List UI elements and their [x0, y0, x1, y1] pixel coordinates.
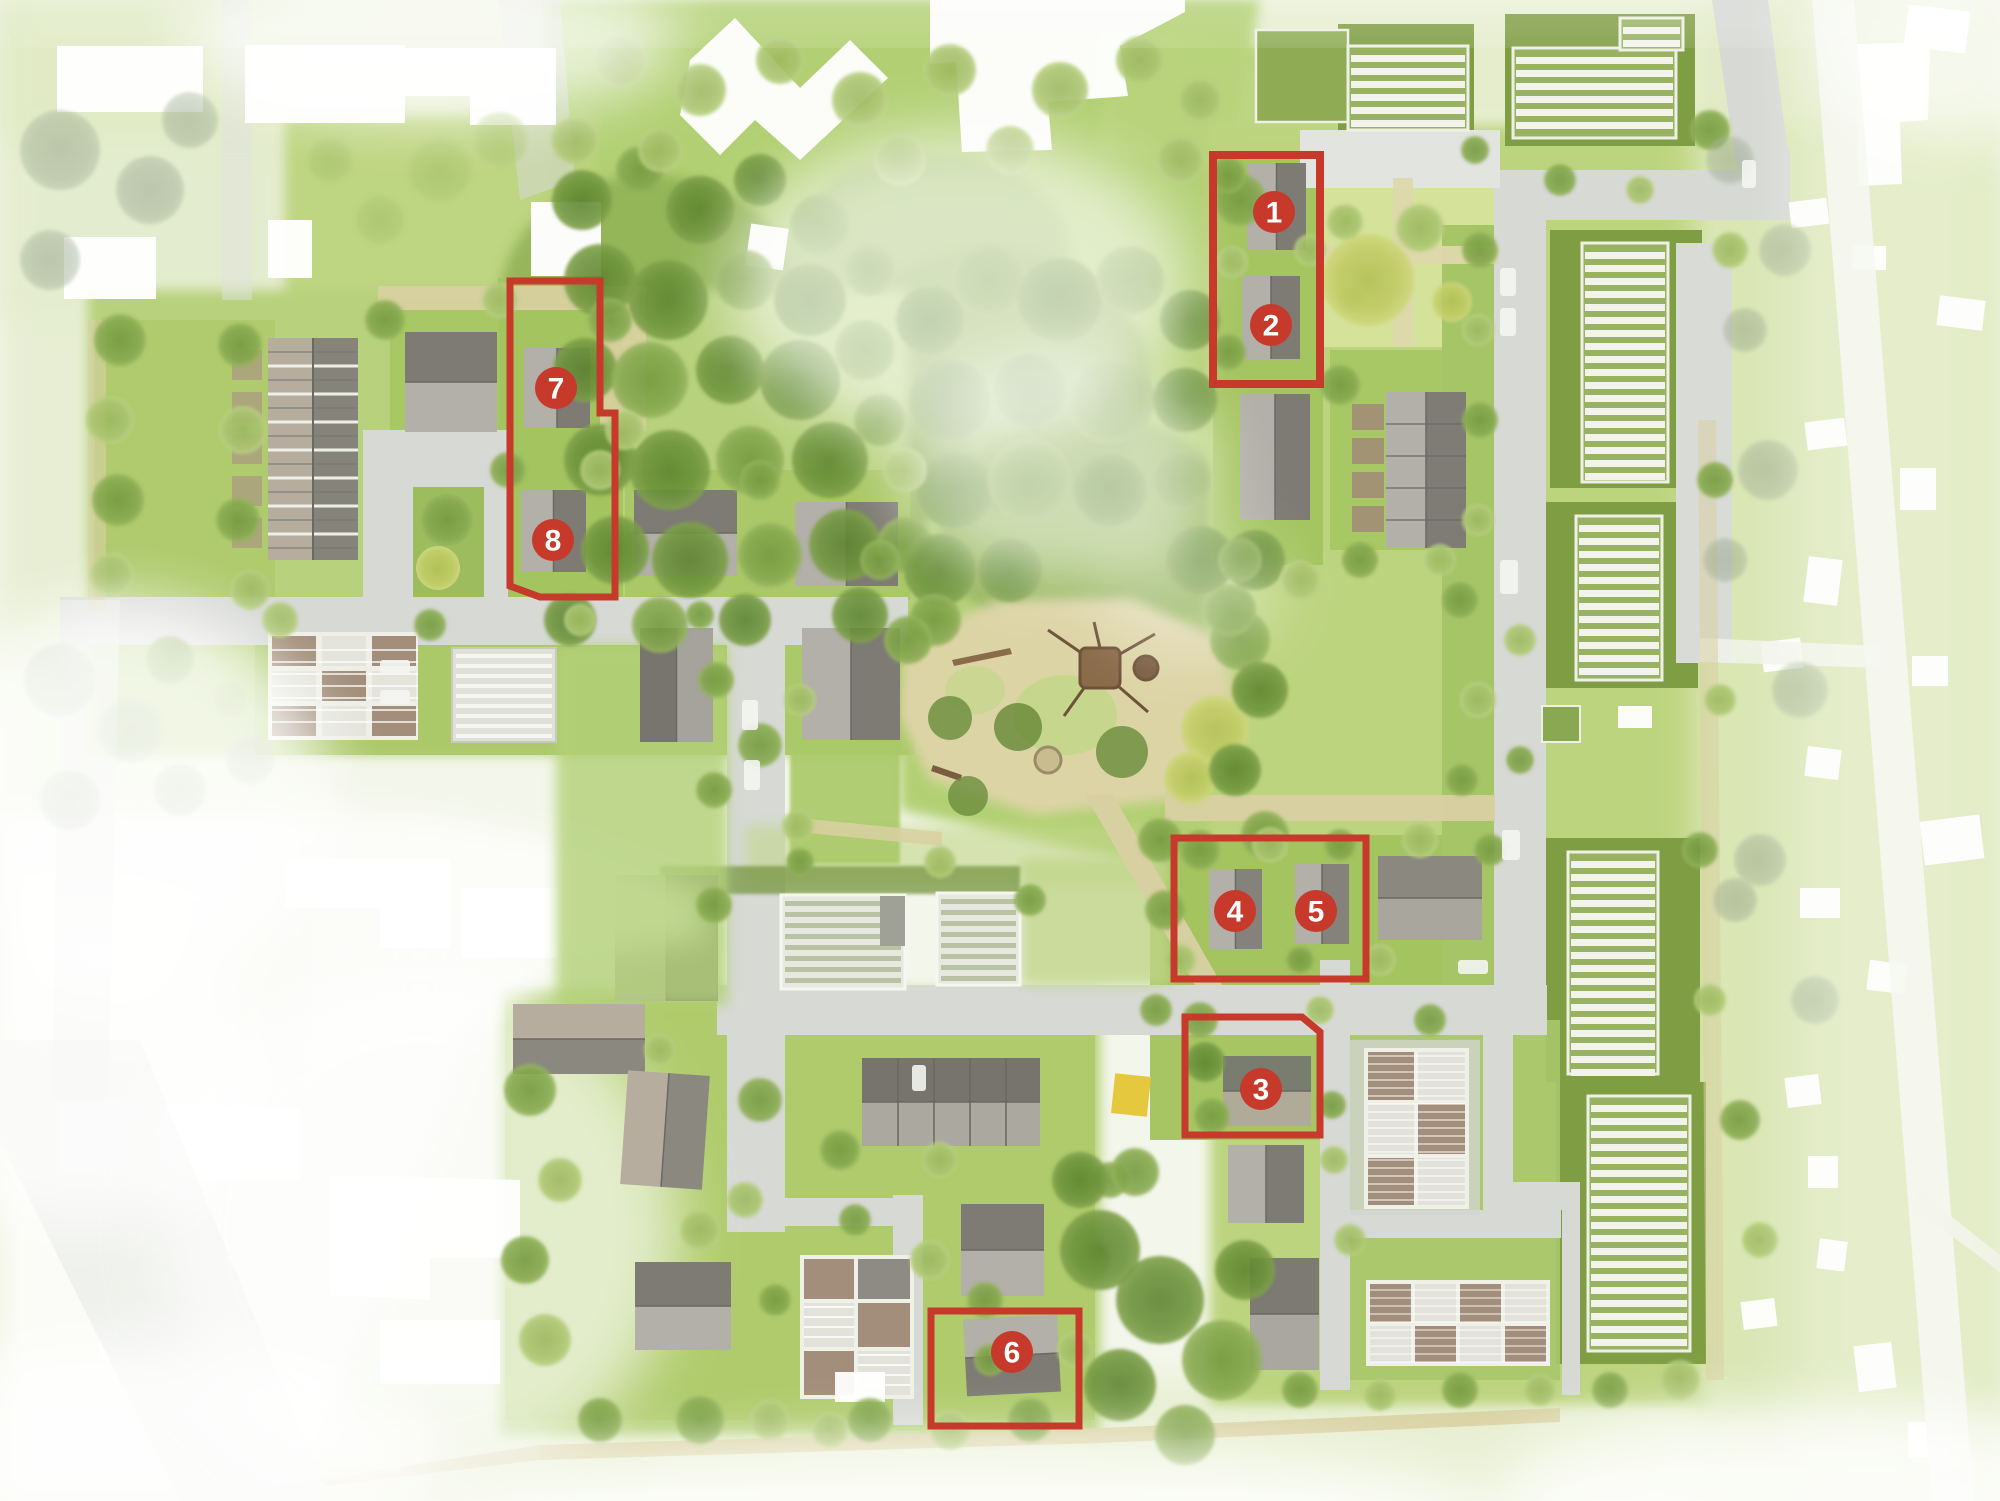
- svg-text:7: 7: [548, 373, 565, 406]
- svg-text:1: 1: [1266, 197, 1283, 230]
- svg-text:3: 3: [1253, 1074, 1270, 1107]
- svg-text:8: 8: [545, 525, 562, 558]
- svg-text:4: 4: [1227, 896, 1244, 929]
- svg-text:2: 2: [1263, 310, 1280, 343]
- svg-text:6: 6: [1004, 1337, 1021, 1370]
- svg-text:5: 5: [1308, 896, 1325, 929]
